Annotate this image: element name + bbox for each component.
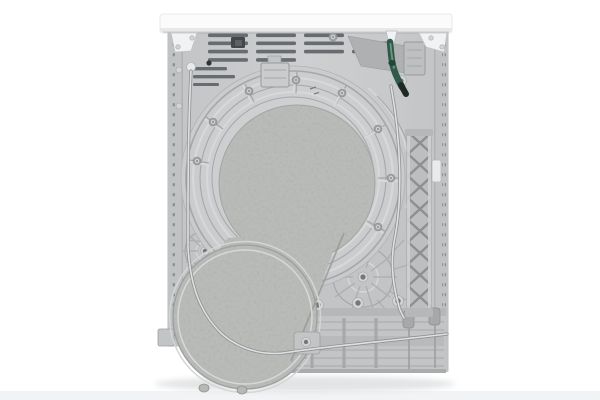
housing-tab [237, 386, 247, 394]
dryer-rear-view [0, 0, 600, 400]
product-photo [0, 0, 600, 400]
worktop-panel [160, 14, 452, 33]
panel-screw [329, 33, 337, 41]
floor-band [0, 391, 600, 400]
side-clip-tab [432, 160, 441, 182]
panel-hole [206, 60, 211, 65]
housing-tab [199, 384, 209, 392]
